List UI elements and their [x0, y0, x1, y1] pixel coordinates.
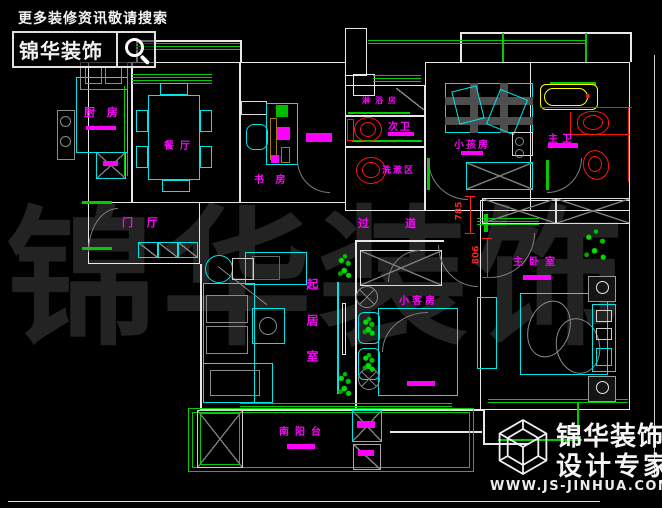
wall-bath-div2: [345, 146, 425, 148]
wall-step-v: [483, 410, 485, 443]
room-label-kidsroom: 小孩房: [454, 136, 490, 151]
toilet-bowl-inner: [360, 122, 376, 137]
dresser-drawer: [596, 310, 612, 322]
wall-guest-top: [355, 240, 444, 242]
window-shower: [373, 81, 421, 82]
floor-lamp: [205, 255, 233, 283]
armchair-cushion: [252, 256, 280, 280]
wash-sink-inner: [362, 162, 380, 178]
sofa-cushion: [210, 370, 260, 396]
search-notice-text: 更多装修资讯敬请搜索: [18, 8, 168, 28]
mbath-sink-inner: [588, 156, 602, 172]
window-shower: [373, 78, 421, 79]
shoe-cabinet: [158, 242, 178, 258]
room-label-living: 起居室: [304, 278, 321, 386]
master-tv-cabinet: [477, 297, 497, 369]
room-label-washarea: 洗漱区: [382, 163, 415, 176]
label-underline: [287, 444, 315, 449]
bathtub-inner: [544, 88, 588, 106]
plant: [336, 252, 354, 282]
dining-chair: [162, 180, 190, 192]
dresser-drawer: [596, 348, 612, 366]
window-master-south: [488, 402, 628, 403]
study-printer: [276, 105, 288, 117]
window-dining-bay: [132, 77, 212, 78]
mbath-partition: [628, 107, 629, 182]
study-computer: [277, 127, 290, 140]
window-north-band: [368, 40, 585, 41]
kids-lamp: [515, 149, 524, 158]
study-desk: [270, 118, 277, 160]
dim-line: [487, 238, 488, 278]
coffee-table-decor: [259, 317, 277, 335]
plant: [336, 370, 354, 400]
label-underline: [523, 275, 551, 280]
room-label-dining: 餐厅: [164, 137, 196, 152]
study-item: [271, 155, 279, 163]
sheet-border-right: [654, 55, 655, 475]
hall-towel-bar: [306, 133, 332, 142]
study-lamp: [281, 147, 290, 163]
logo-tagline: 设计专家: [556, 446, 662, 483]
room-label-kitchen: 厨 房: [84, 104, 122, 120]
dim-tick: [482, 238, 492, 239]
dimension-text: 806: [471, 246, 481, 265]
window-dining-bay: [132, 80, 212, 81]
balcony-storage-in: [200, 413, 240, 465]
kitchen-stove-bar: [103, 161, 118, 166]
kids-lamp: [515, 137, 524, 146]
dining-chair: [136, 110, 148, 132]
isometric-cube-icon: [496, 418, 550, 476]
wall-guest-left: [355, 240, 357, 410]
side-table: [232, 258, 254, 280]
night-lamp: [596, 381, 609, 394]
dim-line: [470, 196, 471, 234]
room-label-corridor: 过道: [358, 215, 452, 231]
window-dining-bay: [132, 74, 212, 75]
search-brand-text: 锦华装饰: [14, 35, 116, 64]
dining-chair: [200, 110, 212, 132]
dim-tick: [482, 277, 492, 278]
master-wardrobe: [556, 198, 630, 224]
shoe-cabinet: [178, 242, 198, 258]
plant: [361, 352, 377, 374]
label-underline: [86, 126, 116, 130]
appliance-bar: [358, 450, 374, 456]
window-north-band: [368, 43, 585, 44]
company-logo: 锦华装饰 设计专家 WWW.JS-JINHUA.COM: [486, 416, 658, 498]
label-underline: [407, 381, 435, 386]
plant: [361, 316, 377, 338]
cooktop-burner: [60, 136, 71, 147]
room-label-masterbedroom: 主卧室: [513, 253, 561, 268]
toilet-tank: [347, 119, 354, 141]
mbath-partition: [570, 134, 630, 135]
window-foyer-1: [82, 201, 112, 204]
dining-chair: [200, 146, 212, 168]
dim-tick: [465, 196, 475, 197]
kitchen-sink-bowl: [85, 66, 102, 84]
room-label-guestroom: 小客房: [399, 292, 438, 307]
plant: [578, 226, 614, 266]
wall-bay-left: [460, 32, 462, 62]
laundry-appliance: [353, 444, 381, 470]
wall-bath-div1: [345, 115, 425, 117]
room-label-bath2: 次卫: [388, 118, 412, 133]
mbath-toilet-inner: [583, 115, 603, 130]
dining-chair: [160, 83, 188, 95]
room-label-balcony: 南阳台: [279, 423, 327, 438]
logo-website: WWW.JS-JINHUA.COM: [490, 479, 662, 494]
dining-chair: [136, 146, 148, 168]
sofa-cushion: [206, 295, 248, 323]
wall-bay-right: [630, 32, 632, 62]
sill-bath2-top: [348, 112, 410, 114]
bathtub-drain: [586, 94, 590, 98]
floorplan-screenshot: 锦华装饰 厨 房餐厅书 房淋浴房次卫洗漱区小孩房主卫门 厅过道起居室小客房主卧室…: [0, 0, 662, 508]
master-wardrobe: [482, 198, 556, 224]
room-label-shower: 淋浴房: [362, 95, 401, 106]
wall-bay-top: [460, 32, 630, 34]
shoe-cabinet: [138, 242, 158, 258]
dresser-drawer: [596, 328, 612, 340]
dimension-text: 785: [454, 202, 464, 221]
washer-bar: [357, 421, 375, 428]
room-label-foyer: 门 厅: [122, 214, 163, 230]
bay-mullion-1: [502, 33, 504, 62]
kitchen-sink-bowl: [105, 66, 122, 84]
wall-win-cap-r: [240, 40, 242, 62]
study-chair: [246, 124, 268, 150]
night-lamp: [596, 281, 609, 294]
label-underline: [461, 151, 483, 155]
cooktop-burner: [60, 116, 71, 127]
window-living-south: [240, 403, 452, 404]
mbath-partition: [540, 107, 632, 108]
sheet-border-bottom: [8, 501, 600, 502]
window-shower: [373, 75, 421, 76]
tv-set: [342, 303, 346, 355]
window-living-south: [240, 406, 452, 407]
room-label-study: 书 房: [254, 171, 289, 186]
bay-mullion-2: [585, 33, 587, 62]
study-shelf: [241, 101, 267, 115]
magnifier-handle: [140, 55, 151, 66]
kids-wardrobe: [466, 162, 533, 190]
search-box[interactable]: 锦华装饰: [12, 31, 156, 68]
wall-living-left: [200, 264, 202, 410]
dim-tick: [465, 233, 475, 234]
room-label-masterbath: 主卫: [548, 130, 576, 145]
speaker: [356, 286, 378, 308]
magnifier-icon[interactable]: [118, 33, 154, 66]
sofa-cushion: [206, 326, 248, 354]
wall-duct: [345, 28, 367, 76]
